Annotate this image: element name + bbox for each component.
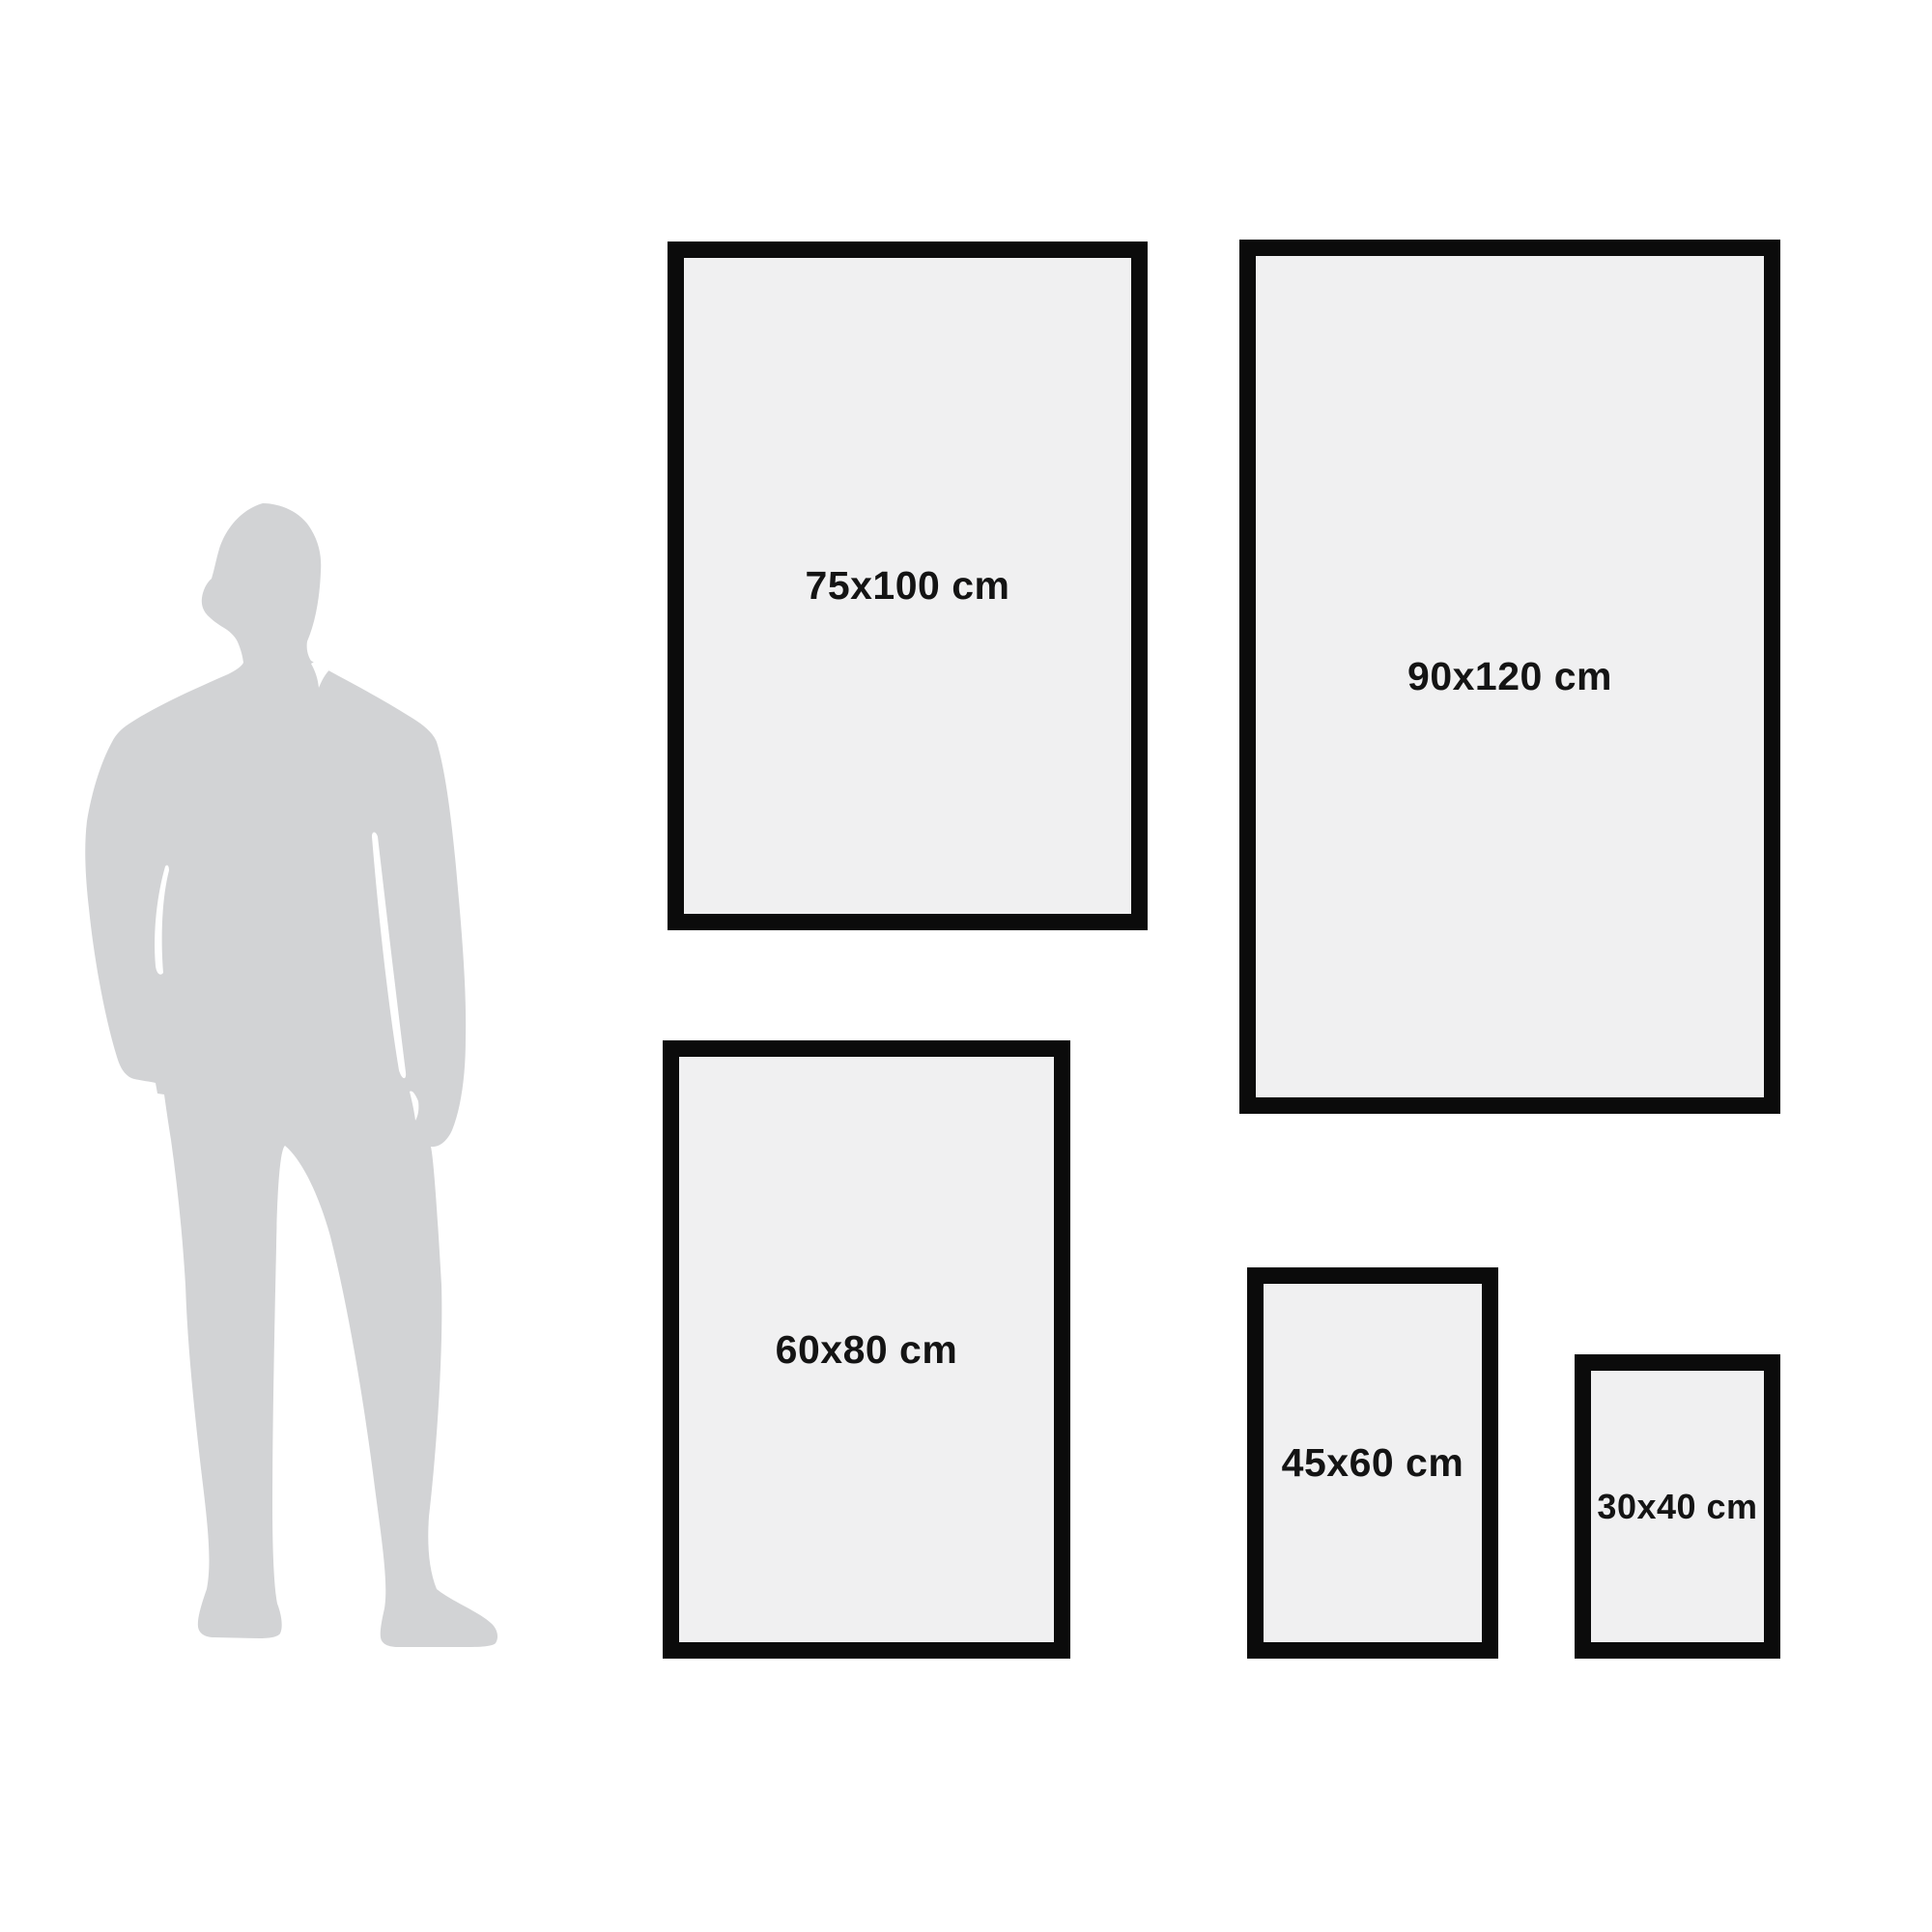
- size-label-30x40: 30x40 cm: [1597, 1487, 1757, 1527]
- man-silhouette-body: [85, 503, 497, 1647]
- size-label-45x60: 45x60 cm: [1282, 1440, 1464, 1486]
- size-frame-75x100: 75x100 cm: [668, 241, 1148, 930]
- man-silhouette: [77, 493, 512, 1652]
- size-frame-60x80: 60x80 cm: [663, 1040, 1070, 1659]
- size-label-75x100: 75x100 cm: [806, 563, 1010, 609]
- size-frame-30x40: 30x40 cm: [1575, 1354, 1780, 1659]
- size-comparison-diagram: 75x100 cm 90x120 cm 60x80 cm 45x60 cm 30…: [0, 0, 1932, 1932]
- size-frame-45x60: 45x60 cm: [1247, 1267, 1498, 1659]
- size-frame-90x120: 90x120 cm: [1239, 240, 1780, 1114]
- size-label-90x120: 90x120 cm: [1407, 654, 1612, 699]
- size-label-60x80: 60x80 cm: [776, 1327, 958, 1373]
